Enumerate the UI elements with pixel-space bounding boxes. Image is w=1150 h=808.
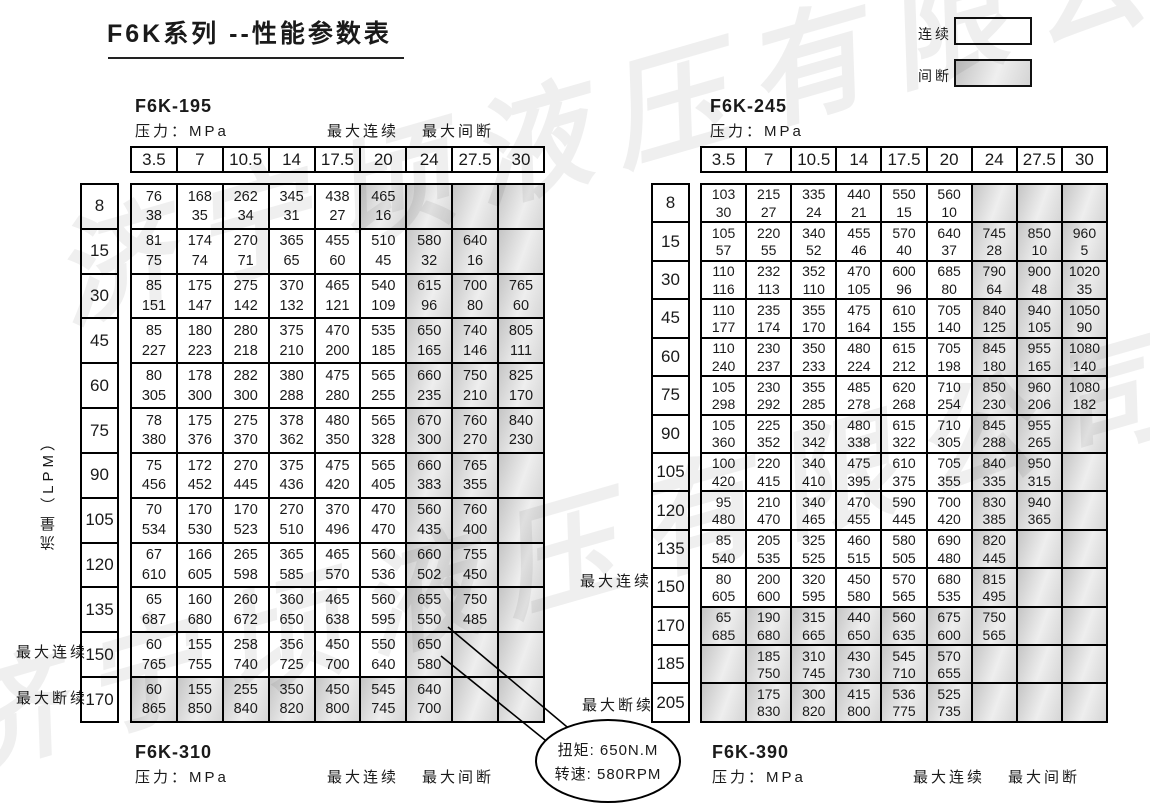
data-cell: 710254 [927,376,972,414]
data-cell: 325525 [791,530,836,568]
page-title: F6K系列 --性能参数表 [107,14,392,50]
pressure-column-header: 24 [972,147,1017,172]
flow-row-label: 90 [652,415,689,453]
data-cell: 700420 [927,491,972,529]
data-cell: 27071 [223,229,269,274]
data-cell [498,543,544,588]
flow-row-label: 15 [81,229,118,274]
data-cell [972,184,1017,222]
data-cell [1017,184,1062,222]
data-cell: 200600 [746,568,791,606]
data-cell: 166605 [177,543,223,588]
table-name-f6k-245: F6K-245 [710,96,787,117]
pressure-column-header: 27.5 [1017,147,1062,172]
data-cell: 460515 [836,530,881,568]
pressure-column-header: 3.5 [701,147,746,172]
data-cell: 100420 [701,453,746,491]
data-cell: 535185 [360,318,406,363]
data-cell: 110116 [701,261,746,299]
data-cell: 355170 [791,299,836,337]
data-cell [1062,453,1107,491]
flow-row-label: 170 [81,677,118,722]
data-cell: 80305 [131,363,177,408]
data-cell: 475395 [836,453,881,491]
data-cell [498,587,544,632]
pressure-column-header: 17.5 [315,147,361,172]
data-cell [498,453,544,498]
flow-row-label: 150 [652,568,689,606]
data-cell: 235174 [746,299,791,337]
data-cell: 75456 [131,453,177,498]
data-cell [498,677,544,722]
data-cell: 46516 [360,184,406,229]
data-cell [1017,645,1062,683]
data-cell: 170530 [177,498,223,543]
flow-row-label: 120 [81,543,118,588]
data-cell: 175376 [177,408,223,453]
data-cell: 282300 [223,363,269,408]
data-cell: 155850 [177,677,223,722]
data-cell: 670300 [406,408,452,453]
data-cell [1062,568,1107,606]
data-cell: 370496 [315,498,361,543]
data-cell: 51045 [360,229,406,274]
data-cell: 960206 [1017,376,1062,414]
data-cell: 365585 [269,543,315,588]
data-cell: 56010 [927,184,972,222]
data-cell: 615212 [881,338,926,376]
data-cell: 465638 [315,587,361,632]
data-grid-f6k-195: 7638168352623434531438274651681751747427… [130,183,545,723]
data-cell: 280218 [223,318,269,363]
data-cell: 615322 [881,415,926,453]
flow-row-label: 60 [81,363,118,408]
flow-axis-label: 流量（LPM） [38,432,59,551]
data-cell: 230292 [746,376,791,414]
data-cell: 475280 [315,363,361,408]
data-cell: 70534 [131,498,177,543]
data-cell: 360650 [269,587,315,632]
pressure-column-header: 3.5 [131,147,177,172]
data-cell: 220415 [746,453,791,491]
data-cell: 110240 [701,338,746,376]
data-cell: 9605 [1062,222,1107,260]
flow-row-label: 8 [81,184,118,229]
flow-row-label: 185 [652,645,689,683]
data-cell: 740146 [452,318,498,363]
data-cell [701,645,746,683]
data-cell: 470470 [360,498,406,543]
pressure-column-header: 10.5 [791,147,836,172]
data-cell: 650165 [406,318,452,363]
data-cell: 620268 [881,376,926,414]
data-cell: 590445 [881,491,926,529]
data-cell [1017,683,1062,722]
data-cell [1062,683,1107,722]
data-cell: 565405 [360,453,406,498]
data-cell: 60096 [881,261,926,299]
flow-row-label: 90 [81,453,118,498]
pressure-column-header: 14 [836,147,881,172]
data-cell: 60765 [131,632,177,677]
max-intermittent-label-f6k-310: 最大间断 [422,766,494,787]
data-cell: 85010 [1017,222,1062,260]
data-cell: 43827 [315,184,361,229]
data-cell [452,184,498,229]
data-cell: 10557 [701,222,746,260]
data-cell [1017,607,1062,645]
data-cell: 78380 [131,408,177,453]
data-cell [406,184,452,229]
data-cell: 1080140 [1062,338,1107,376]
flow-row-label: 170 [652,607,689,645]
data-cell: 7638 [131,184,177,229]
data-cell: 16835 [177,184,223,229]
data-cell: 180223 [177,318,223,363]
data-cell [701,683,746,722]
data-cell: 102035 [1062,261,1107,299]
data-cell: 17474 [177,229,223,274]
data-cell: 1080182 [1062,376,1107,414]
data-cell: 175830 [746,683,791,722]
max-continuous-label-f6k-390: 最大连续 [913,766,985,787]
pressure-header-f6k-195: 3.5710.51417.5202427.530 [130,146,545,173]
pressure-column-header: 30 [498,147,544,172]
data-cell: 940105 [1017,299,1062,337]
data-cell: 845288 [972,415,1017,453]
max-continuous-label-left-top: 最大连续 [327,120,399,141]
data-cell: 190680 [746,607,791,645]
data-cell: 845180 [972,338,1017,376]
data-cell: 185750 [746,645,791,683]
legend-continuous-swatch [954,17,1032,45]
data-cell: 705140 [927,299,972,337]
flow-row-label: 75 [652,376,689,414]
data-cell: 105090 [1062,299,1107,337]
data-cell: 660383 [406,453,452,498]
data-cell: 258740 [223,632,269,677]
data-cell: 485278 [836,376,881,414]
max-discontinuous-row-label-right: 最大断续 [582,694,654,715]
flow-row-label: 135 [81,587,118,632]
data-cell: 470105 [836,261,881,299]
data-cell: 565255 [360,363,406,408]
data-cell: 340465 [791,491,836,529]
data-cell: 105360 [701,415,746,453]
data-cell: 300820 [791,683,836,722]
data-cell: 375436 [269,453,315,498]
data-cell: 815495 [972,568,1017,606]
data-cell: 85227 [131,318,177,363]
pressure-label-right: 压力：MPa [710,120,804,141]
data-cell [498,498,544,543]
data-cell: 270510 [269,498,315,543]
data-cell: 350820 [269,677,315,722]
data-cell: 64037 [927,222,972,260]
data-cell: 465121 [315,274,361,319]
data-cell: 370132 [269,274,315,319]
data-cell: 225352 [746,415,791,453]
pressure-column-header: 24 [406,147,452,172]
data-cell [1062,491,1107,529]
data-cell: 352110 [791,261,836,299]
title-underline [108,57,404,59]
data-cell: 955265 [1017,415,1062,453]
data-cell: 232113 [746,261,791,299]
data-cell: 10330 [701,184,746,222]
data-cell: 60865 [131,677,177,722]
data-cell: 805111 [498,318,544,363]
data-cell: 34052 [791,222,836,260]
pressure-header-f6k-245: 3.5710.51417.5202427.530 [700,146,1108,173]
data-cell: 560635 [881,607,926,645]
data-cell: 90048 [1017,261,1062,299]
pressure-column-header: 17.5 [881,147,926,172]
data-cell: 26234 [223,184,269,229]
data-cell [1017,568,1062,606]
max-intermittent-label-f6k-390: 最大间断 [1008,766,1080,787]
flow-row-label: 205 [652,683,689,722]
max-discontinuous-row-label-left: 最大断续 [16,687,88,708]
data-cell: 355285 [791,376,836,414]
data-cell: 475164 [836,299,881,337]
legend-intermittent-label: 间断 [918,66,952,86]
data-cell: 350233 [791,338,836,376]
data-cell: 680535 [927,568,972,606]
data-cell: 67610 [131,543,177,588]
data-cell: 155755 [177,632,223,677]
pressure-column-header: 14 [269,147,315,172]
flow-row-label: 30 [81,274,118,319]
data-cell: 450580 [836,568,881,606]
data-cell: 68580 [927,261,972,299]
flow-row-label: 75 [81,408,118,453]
data-cell: 320595 [791,568,836,606]
data-cell [498,184,544,229]
data-cell: 545745 [360,677,406,722]
data-cell: 840335 [972,453,1017,491]
data-cell: 265598 [223,543,269,588]
data-cell: 275142 [223,274,269,319]
data-cell: 210470 [746,491,791,529]
max-continuous-row-label-right: 最大连续 [580,570,652,591]
data-cell: 270445 [223,453,269,498]
data-cell: 79064 [972,261,1017,299]
data-cell: 430730 [836,645,881,683]
data-cell: 33524 [791,184,836,222]
data-cell: 275370 [223,408,269,453]
flow-row-label: 8 [652,184,689,222]
data-cell: 255840 [223,677,269,722]
table-name-f6k-195: F6K-195 [135,96,212,117]
data-cell: 840230 [498,408,544,453]
data-cell: 65685 [701,607,746,645]
data-cell: 750210 [452,363,498,408]
data-cell: 580505 [881,530,926,568]
data-cell: 65687 [131,587,177,632]
data-cell: 450800 [315,677,361,722]
data-cell: 550640 [360,632,406,677]
data-cell: 840125 [972,299,1017,337]
data-cell [1062,607,1107,645]
data-cell: 750485 [452,587,498,632]
data-cell [452,677,498,722]
pressure-column-header: 7 [746,147,791,172]
pressure-column-header: 27.5 [452,147,498,172]
data-cell: 480224 [836,338,881,376]
data-cell: 21527 [746,184,791,222]
pressure-column-header: 7 [177,147,223,172]
data-cell: 690480 [927,530,972,568]
max-continuous-row-label-left: 最大连续 [16,641,88,662]
data-cell: 830385 [972,491,1017,529]
data-cell: 110177 [701,299,746,337]
pressure-column-header: 30 [1062,147,1107,172]
data-cell: 480350 [315,408,361,453]
data-cell: 560435 [406,498,452,543]
data-cell: 160680 [177,587,223,632]
pressure-label-f6k-390: 压力：MPa [712,766,806,787]
flow-row-label: 45 [652,299,689,337]
flow-row-label: 105 [652,453,689,491]
data-cell: 650580 [406,632,452,677]
data-cell: 356725 [269,632,315,677]
data-cell [1062,530,1107,568]
flow-row-label: 135 [652,530,689,568]
data-cell: 950315 [1017,453,1062,491]
data-cell: 95480 [701,491,746,529]
data-cell: 36565 [269,229,315,274]
data-cell: 8175 [131,229,177,274]
data-cell: 560595 [360,587,406,632]
data-cell: 850230 [972,376,1017,414]
data-cell: 755450 [452,543,498,588]
callout-torque: 扭矩: 650N.M [558,739,659,760]
max-intermittent-label-left-top: 最大间断 [422,120,494,141]
data-cell: 61596 [406,274,452,319]
data-cell: 760270 [452,408,498,453]
data-cell [1062,184,1107,222]
data-cell: 76560 [498,274,544,319]
flow-labels-f6k-195: 8153045607590105120135150170 [80,183,119,723]
data-cell: 940365 [1017,491,1062,529]
flow-row-label: 150 [81,632,118,677]
data-cell: 470455 [836,491,881,529]
data-cell: 230237 [746,338,791,376]
data-cell: 380288 [269,363,315,408]
data-cell: 315665 [791,607,836,645]
data-cell: 610375 [881,453,926,491]
pressure-label-left: 压力：MPa [135,120,229,141]
data-cell: 565328 [360,408,406,453]
data-cell: 660502 [406,543,452,588]
data-cell [1062,645,1107,683]
data-cell: 378362 [269,408,315,453]
pressure-column-header: 20 [927,147,972,172]
pressure-column-header: 20 [360,147,406,172]
data-cell: 570565 [881,568,926,606]
table-name-f6k-310: F6K-310 [135,742,212,763]
data-cell: 310745 [791,645,836,683]
data-cell: 545710 [881,645,926,683]
data-cell: 70080 [452,274,498,319]
data-cell: 955165 [1017,338,1062,376]
data-cell [1062,415,1107,453]
pressure-column-header: 10.5 [223,147,269,172]
data-cell [498,632,544,677]
data-cell: 560536 [360,543,406,588]
data-cell: 55015 [881,184,926,222]
data-cell: 74528 [972,222,1017,260]
data-cell: 340410 [791,453,836,491]
data-cell: 205535 [746,530,791,568]
data-cell: 660235 [406,363,452,408]
data-cell [1017,530,1062,568]
data-cell [972,683,1017,722]
data-cell: 655550 [406,587,452,632]
data-cell: 820445 [972,530,1017,568]
data-cell: 480338 [836,415,881,453]
data-cell: 57040 [881,222,926,260]
max-continuous-label-f6k-310: 最大连续 [327,766,399,787]
legend-intermittent-swatch [954,59,1032,87]
data-cell: 80605 [701,568,746,606]
data-cell: 610155 [881,299,926,337]
data-cell: 58032 [406,229,452,274]
flow-row-label: 60 [652,338,689,376]
data-cell: 22055 [746,222,791,260]
table-name-f6k-390: F6K-390 [712,742,789,763]
data-cell: 450700 [315,632,361,677]
data-cell [498,229,544,274]
flow-row-label: 45 [81,318,118,363]
data-cell: 705355 [927,453,972,491]
data-cell: 705198 [927,338,972,376]
data-cell: 540109 [360,274,406,319]
legend-continuous-label: 连续 [918,24,952,44]
data-cell: 85151 [131,274,177,319]
data-grid-f6k-245: 1033021527335244402155015560101055722055… [700,183,1108,723]
data-cell: 640700 [406,677,452,722]
data-cell: 415800 [836,683,881,722]
data-cell: 105298 [701,376,746,414]
data-cell: 172452 [177,453,223,498]
data-cell: 45560 [315,229,361,274]
data-cell: 34531 [269,184,315,229]
data-cell: 470200 [315,318,361,363]
data-cell: 45546 [836,222,881,260]
data-cell [452,632,498,677]
data-cell: 570655 [927,645,972,683]
flow-row-label: 30 [652,261,689,299]
data-cell: 536775 [881,683,926,722]
data-cell: 170523 [223,498,269,543]
data-cell: 750565 [972,607,1017,645]
flow-row-label: 120 [652,491,689,529]
data-cell: 350342 [791,415,836,453]
data-cell: 260672 [223,587,269,632]
data-cell: 64016 [452,229,498,274]
flow-row-label: 15 [652,222,689,260]
data-cell: 375210 [269,318,315,363]
pressure-label-f6k-310: 压力：MPa [135,766,229,787]
data-cell: 710305 [927,415,972,453]
data-cell: 765355 [452,453,498,498]
data-cell: 175147 [177,274,223,319]
data-cell: 465570 [315,543,361,588]
data-cell: 675600 [927,607,972,645]
data-cell [972,645,1017,683]
